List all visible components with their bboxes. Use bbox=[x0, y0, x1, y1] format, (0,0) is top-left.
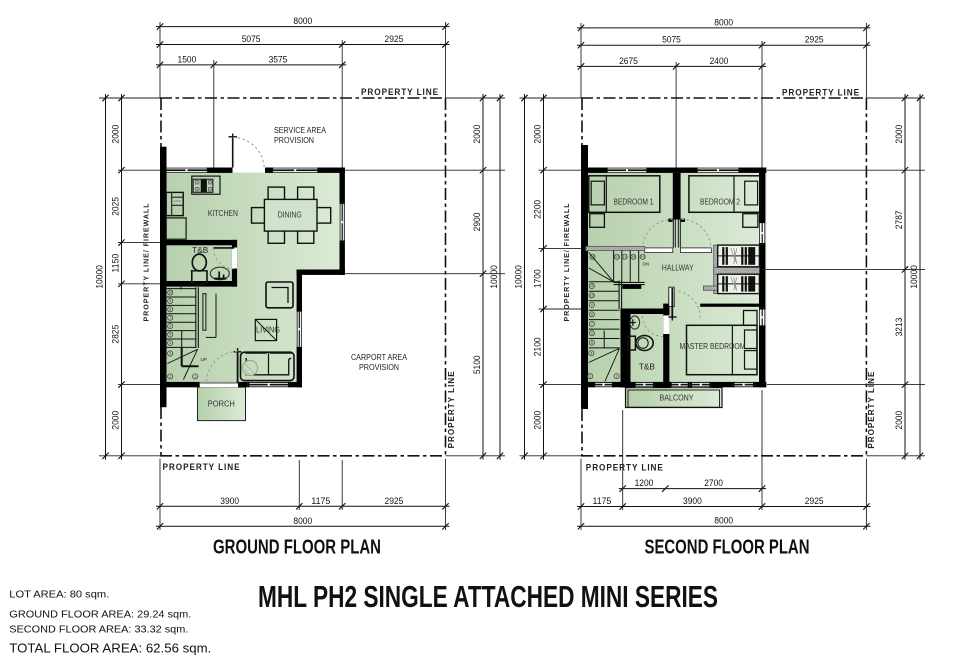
svg-text:BEDROOM 1: BEDROOM 1 bbox=[614, 198, 654, 207]
svg-text:1200: 1200 bbox=[635, 478, 654, 488]
svg-text:2925: 2925 bbox=[805, 35, 824, 45]
svg-text:2: 2 bbox=[169, 375, 171, 379]
svg-text:16: 16 bbox=[641, 255, 645, 259]
svg-text:MASTER BEDROOM: MASTER BEDROOM bbox=[680, 342, 746, 351]
svg-text:KITCHEN: KITCHEN bbox=[208, 209, 238, 218]
svg-text:2700: 2700 bbox=[704, 478, 723, 488]
svg-text:15: 15 bbox=[631, 255, 635, 259]
svg-text:HALLWAY: HALLWAY bbox=[662, 263, 695, 272]
svg-text:PORCH: PORCH bbox=[208, 400, 235, 409]
svg-text:5075: 5075 bbox=[662, 35, 681, 45]
svg-text:GROUND FLOOR PLAN: GROUND FLOOR PLAN bbox=[213, 537, 381, 559]
svg-text:12: 12 bbox=[591, 255, 595, 259]
svg-text:5: 5 bbox=[591, 341, 593, 345]
svg-text:6: 6 bbox=[591, 331, 593, 335]
svg-text:DN: DN bbox=[643, 262, 650, 267]
svg-text:10000: 10000 bbox=[489, 265, 499, 289]
svg-text:2100: 2100 bbox=[533, 337, 543, 356]
svg-text:SECOND FLOOR PLAN: SECOND FLOOR PLAN bbox=[645, 537, 810, 559]
svg-text:5100: 5100 bbox=[472, 355, 482, 374]
svg-text:2825: 2825 bbox=[111, 325, 121, 344]
svg-text:9: 9 bbox=[169, 299, 171, 303]
svg-text:1: 1 bbox=[194, 375, 196, 379]
svg-text:2787: 2787 bbox=[894, 210, 904, 229]
svg-text:3: 3 bbox=[169, 352, 171, 356]
svg-text:DINING: DINING bbox=[278, 211, 302, 220]
svg-text:PROPERTY LINE: PROPERTY LINE bbox=[782, 88, 860, 98]
svg-text:2000: 2000 bbox=[894, 411, 904, 430]
svg-text:TOTAL FLOOR AREA: 62.56 sqm.: TOTAL FLOOR AREA: 62.56 sqm. bbox=[9, 641, 211, 656]
svg-text:2000: 2000 bbox=[533, 125, 543, 144]
svg-text:2925: 2925 bbox=[805, 496, 824, 506]
svg-text:PROPERTY LINE/ FIREWALL: PROPERTY LINE/ FIREWALL bbox=[142, 203, 151, 322]
svg-text:5: 5 bbox=[169, 333, 171, 337]
svg-text:8: 8 bbox=[169, 308, 171, 312]
svg-text:PROVISION: PROVISION bbox=[359, 363, 399, 372]
svg-text:9: 9 bbox=[591, 303, 593, 307]
svg-text:7: 7 bbox=[591, 322, 593, 326]
svg-text:8000: 8000 bbox=[714, 17, 733, 27]
svg-text:SERVICE AREA: SERVICE AREA bbox=[274, 126, 327, 135]
svg-text:2400: 2400 bbox=[710, 56, 729, 66]
svg-text:14: 14 bbox=[623, 255, 627, 259]
svg-text:1700: 1700 bbox=[533, 269, 543, 288]
svg-text:2675: 2675 bbox=[619, 56, 638, 66]
svg-text:8: 8 bbox=[591, 313, 593, 317]
svg-text:PROPERTY LINE: PROPERTY LINE bbox=[361, 87, 439, 97]
svg-text:3575: 3575 bbox=[269, 54, 288, 64]
svg-text:BEDROOM 2: BEDROOM 2 bbox=[700, 198, 740, 207]
svg-text:1150: 1150 bbox=[111, 254, 121, 273]
svg-text:8000: 8000 bbox=[293, 16, 312, 26]
svg-text:2000: 2000 bbox=[472, 125, 482, 144]
svg-text:CARPORT AREA: CARPORT AREA bbox=[351, 353, 408, 362]
svg-text:10: 10 bbox=[168, 291, 172, 295]
svg-text:2: 2 bbox=[589, 374, 591, 378]
svg-text:10000: 10000 bbox=[95, 265, 105, 289]
svg-text:5075: 5075 bbox=[242, 34, 261, 44]
svg-text:2200: 2200 bbox=[533, 200, 543, 219]
svg-text:10: 10 bbox=[590, 294, 594, 298]
svg-text:10000: 10000 bbox=[514, 265, 524, 289]
svg-text:2900: 2900 bbox=[472, 213, 482, 232]
svg-text:6: 6 bbox=[169, 324, 171, 328]
svg-text:2000: 2000 bbox=[894, 125, 904, 144]
svg-text:PROVISION: PROVISION bbox=[274, 136, 314, 145]
svg-text:T&B: T&B bbox=[639, 363, 656, 372]
svg-text:PROPERTY LINE/ FIREWALL: PROPERTY LINE/ FIREWALL bbox=[562, 203, 571, 322]
svg-text:2000: 2000 bbox=[533, 411, 543, 430]
svg-text:10000: 10000 bbox=[909, 265, 919, 289]
svg-text:2025: 2025 bbox=[111, 197, 121, 216]
svg-text:PROPERTY LINE: PROPERTY LINE bbox=[586, 463, 664, 473]
svg-text:PROPERTY LINE: PROPERTY LINE bbox=[867, 371, 876, 449]
svg-text:2925: 2925 bbox=[385, 34, 404, 44]
svg-text:3900: 3900 bbox=[683, 496, 702, 506]
svg-text:13: 13 bbox=[615, 255, 619, 259]
svg-text:2000: 2000 bbox=[111, 125, 121, 144]
svg-text:MHL PH2 SINGLE ATTACHED MINI S: MHL PH2 SINGLE ATTACHED MINI SERIES bbox=[258, 579, 718, 614]
svg-text:PROPERTY LINE: PROPERTY LINE bbox=[163, 462, 241, 472]
svg-text:GROUND FLOOR AREA: 29.24 sqm.: GROUND FLOOR AREA: 29.24 sqm. bbox=[9, 609, 191, 621]
svg-text:7: 7 bbox=[169, 316, 171, 320]
svg-text:4: 4 bbox=[590, 351, 592, 355]
svg-text:LOT AREA: 80 sqm.: LOT AREA: 80 sqm. bbox=[9, 589, 109, 601]
svg-text:UP: UP bbox=[200, 357, 206, 362]
svg-text:PROPERTY LINE: PROPERTY LINE bbox=[447, 370, 456, 448]
svg-text:1175: 1175 bbox=[593, 496, 612, 506]
svg-text:BALCONY: BALCONY bbox=[660, 393, 694, 402]
svg-text:3900: 3900 bbox=[220, 496, 239, 506]
svg-text:1: 1 bbox=[616, 374, 618, 378]
svg-text:2000: 2000 bbox=[111, 411, 121, 430]
svg-text:SECOND FLOOR AREA: 33.32 sqm.: SECOND FLOOR AREA: 33.32 sqm. bbox=[9, 624, 188, 636]
svg-text:8000: 8000 bbox=[293, 516, 312, 526]
svg-text:1500: 1500 bbox=[178, 54, 197, 64]
svg-text:4: 4 bbox=[169, 341, 171, 345]
svg-text:2925: 2925 bbox=[385, 496, 404, 506]
svg-text:1175: 1175 bbox=[311, 496, 330, 506]
svg-text:11: 11 bbox=[590, 284, 594, 288]
svg-text:3213: 3213 bbox=[894, 318, 904, 337]
svg-text:8000: 8000 bbox=[714, 516, 733, 526]
